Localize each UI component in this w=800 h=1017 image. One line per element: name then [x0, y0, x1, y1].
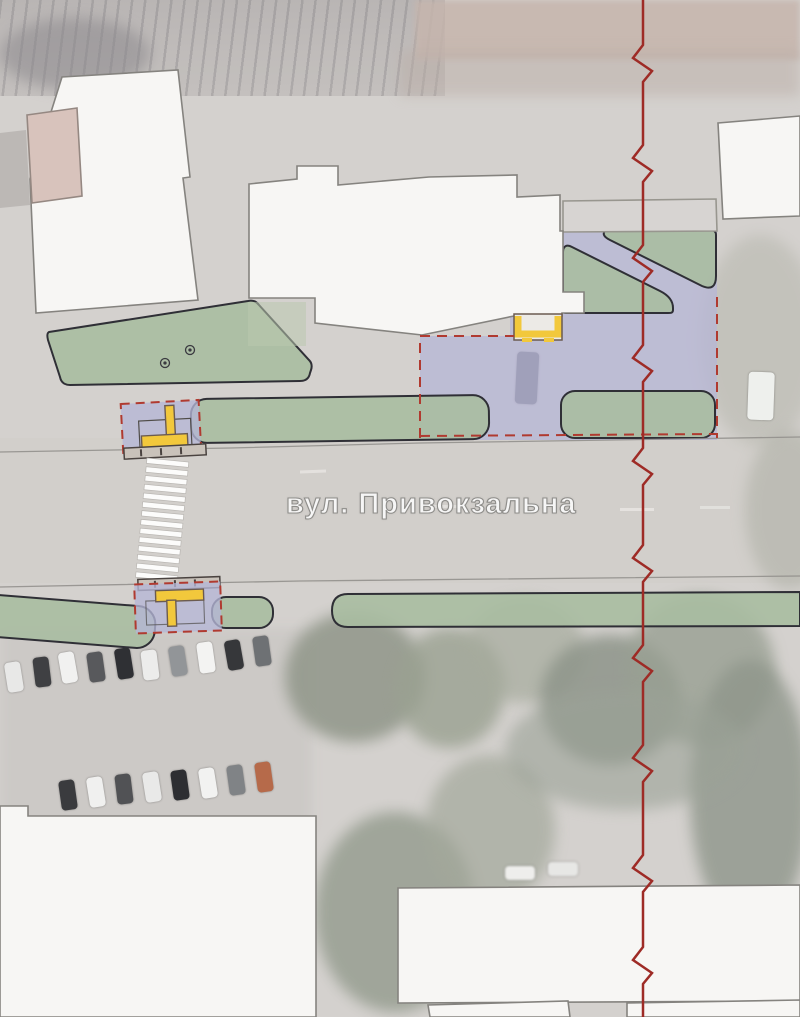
building-bottom-sliver-right	[627, 1000, 800, 1017]
building-bottom-left	[0, 806, 316, 1017]
street-label: вул. Привокзальна	[286, 488, 577, 521]
building-annex-pink	[27, 108, 82, 203]
bench-seat	[155, 589, 203, 602]
crosswalk-stripe	[140, 528, 182, 537]
crosswalk-stripe	[138, 546, 180, 555]
building-annex-gray	[0, 130, 30, 208]
bus-stop-south	[134, 581, 222, 633]
crosswalk-stripe	[145, 476, 187, 485]
building-bottom-wide	[398, 885, 800, 1003]
crosswalk-stripe	[144, 484, 186, 493]
entrance-marker	[514, 314, 562, 342]
building-top-right	[718, 116, 800, 219]
bench-stem	[167, 600, 177, 626]
entrance-yellow-stub	[522, 338, 532, 342]
tree-symbol-dot	[164, 362, 166, 364]
crosswalk-stripe	[143, 493, 185, 502]
crosswalk-stripe	[136, 563, 178, 572]
buildings-layer	[0, 70, 800, 1017]
green-strip-lower-left	[0, 593, 157, 649]
crosswalk-stripe	[146, 458, 188, 467]
green-median-east	[561, 391, 715, 438]
tactile-tick	[140, 449, 142, 456]
crosswalk-stripe	[141, 519, 183, 528]
site-plan-map: вул. Привокзальна	[0, 0, 800, 1017]
tactile-tick	[180, 447, 182, 454]
crosswalk	[136, 458, 189, 581]
crosswalk-stripe	[139, 537, 181, 546]
road-edge-south	[0, 576, 800, 587]
entrance-yellow-stub	[544, 338, 554, 342]
tactile-tick	[160, 448, 162, 455]
green-strip-long-south	[332, 592, 800, 627]
crosswalk-stripe	[142, 502, 184, 511]
tree-symbol-dot	[189, 349, 191, 351]
building-existing-gray	[563, 199, 717, 232]
crosswalk-stripe	[141, 511, 183, 520]
section-line	[633, 0, 652, 1017]
lawn-patch	[248, 302, 306, 346]
crosswalk-stripe	[137, 554, 179, 563]
crosswalk-stripe	[146, 467, 188, 476]
